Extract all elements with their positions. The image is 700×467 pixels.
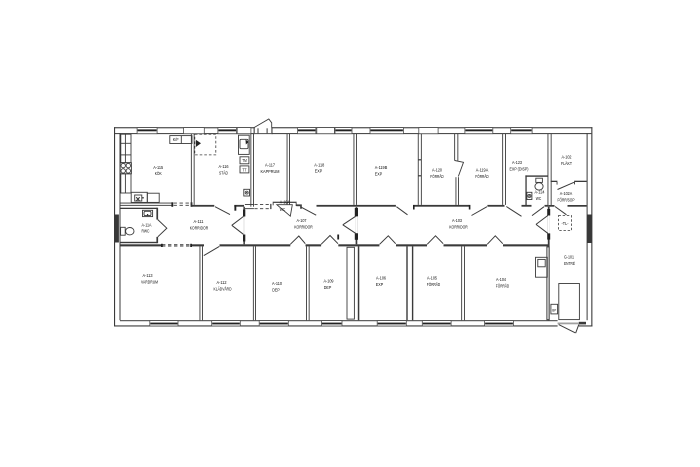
svg-text:FÖRRÅD: FÖRRÅD	[427, 281, 441, 287]
svg-text:A-120: A-120	[432, 168, 442, 173]
svg-text:EXP (DISP): EXP (DISP)	[510, 166, 529, 171]
svg-text:A-10A: A-10A	[280, 199, 290, 204]
svg-text:A-117: A-117	[265, 163, 275, 168]
svg-text:WC: WC	[536, 196, 542, 201]
svg-text:A-102A: A-102A	[560, 191, 573, 196]
svg-text:A-119B: A-119B	[375, 165, 388, 170]
svg-text:A-104: A-104	[496, 277, 506, 282]
svg-text:BP: BP	[552, 309, 557, 313]
svg-text:EXP: EXP	[375, 171, 383, 176]
svg-text:EXP: EXP	[315, 169, 323, 174]
svg-text:A-113: A-113	[143, 273, 153, 278]
svg-text:A-11A: A-11A	[142, 223, 153, 228]
svg-text:EXP: EXP	[376, 282, 384, 287]
svg-text:A-118: A-118	[314, 162, 324, 167]
svg-text:KÖK: KÖK	[155, 170, 163, 176]
svg-text:A-123: A-123	[512, 160, 522, 165]
svg-text:TT: TT	[242, 167, 247, 172]
svg-text:A-116: A-116	[219, 164, 229, 169]
svg-text:A-112: A-112	[217, 280, 227, 285]
svg-text:A-119A: A-119A	[476, 168, 489, 173]
svg-text:A-109: A-109	[324, 279, 334, 284]
svg-text:VARDRUM: VARDRUM	[141, 279, 158, 284]
svg-text:ENTRÉ: ENTRÉ	[564, 260, 575, 266]
svg-text:A-103: A-103	[452, 218, 462, 223]
svg-text:KORRIDOR: KORRIDOR	[294, 224, 313, 229]
svg-text:DEP: DEP	[272, 287, 280, 292]
svg-text:RWC: RWC	[142, 228, 150, 233]
svg-text:A-102: A-102	[562, 155, 572, 160]
svg-text:FLÄKT: FLÄKT	[561, 160, 572, 166]
svg-text:DEP: DEP	[324, 285, 332, 290]
svg-text:STÄD: STÄD	[219, 169, 228, 175]
svg-text:KLÄDVÅRD: KLÄDVÅRD	[214, 285, 232, 291]
svg-text:KORRIDOR: KORRIDOR	[190, 225, 209, 230]
svg-text:A-105: A-105	[427, 276, 437, 281]
svg-text:A-124: A-124	[535, 190, 545, 195]
svg-text:KAPPRUM: KAPPRUM	[261, 169, 280, 174]
svg-text:WC: WC	[280, 207, 286, 212]
svg-text:G-101: G-101	[564, 255, 574, 260]
svg-text:A-106: A-106	[376, 276, 386, 281]
svg-text:A-107: A-107	[297, 218, 307, 223]
svg-text:FÖRRÅD: FÖRRÅD	[496, 282, 510, 288]
svg-text:A-111: A-111	[194, 219, 204, 224]
svg-text:FÖRR/SOP: FÖRR/SOP	[558, 196, 575, 202]
svg-text:A-115: A-115	[153, 165, 163, 170]
svg-text:FÖRRÅD: FÖRRÅD	[430, 173, 444, 179]
svg-text:KORRIDOR: KORRIDOR	[449, 224, 468, 229]
svg-text:K/F: K/F	[173, 137, 179, 142]
svg-text:FÖRRÅD: FÖRRÅD	[475, 173, 489, 179]
svg-text:-TL-: -TL-	[562, 221, 570, 226]
svg-text:A-110: A-110	[272, 281, 282, 286]
svg-text:TM: TM	[242, 158, 247, 163]
